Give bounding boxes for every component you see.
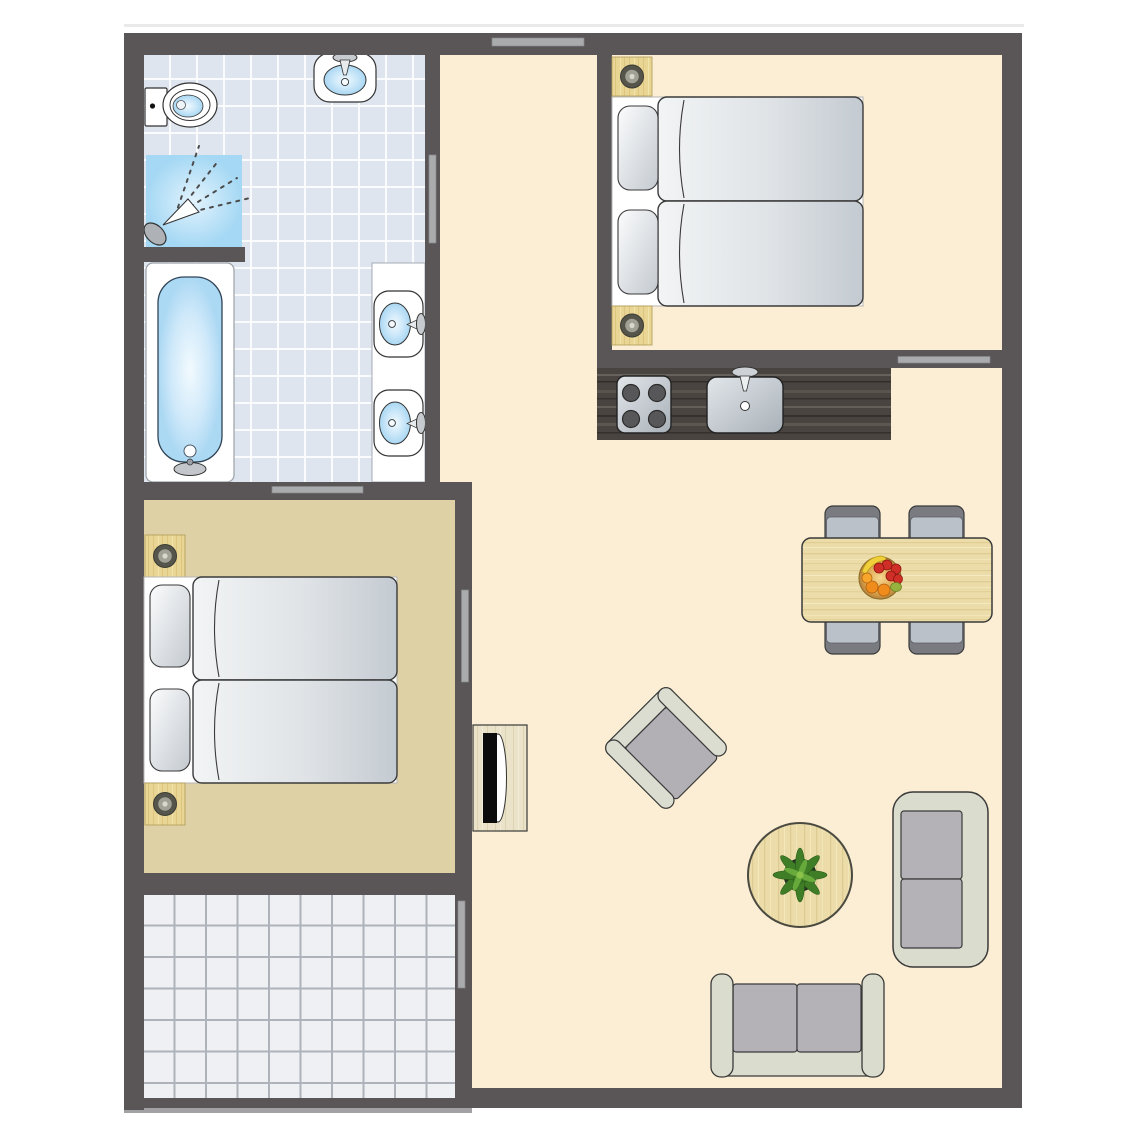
door-marker-bath-bedroom2: [272, 487, 363, 494]
stove-burner: [623, 385, 640, 402]
tv-panel: [483, 733, 497, 823]
door-marker-bedroom2: [462, 590, 469, 682]
wall-sink-drain: [341, 78, 348, 85]
plant-center: [797, 872, 804, 879]
sofa-bottom-armrest: [711, 974, 733, 1077]
fruit-orange: [862, 573, 872, 583]
bedroom1-duvet-1: [658, 97, 863, 201]
floorplan-root: [124, 24, 1024, 1113]
bedroom1-lamp-center: [629, 74, 634, 79]
wall-outer-right: [1002, 33, 1022, 1108]
bedroom1-duvet-2: [658, 201, 863, 306]
bathtub-faucet-knob: [187, 459, 193, 465]
bedroom1-pillow: [618, 106, 658, 190]
wall-shower-stub: [144, 247, 245, 262]
toilet-flush-button: [150, 103, 155, 108]
door-marker-bedroom1: [898, 357, 990, 364]
fruit-cherry: [874, 563, 884, 573]
plant: [773, 848, 827, 902]
bedroom2-duvet-1: [193, 577, 397, 680]
floorplan-canvas: [0, 0, 1145, 1145]
stove-burner: [649, 385, 666, 402]
floorplan: [0, 0, 1145, 1145]
sofa-bottom-cushion: [797, 984, 861, 1052]
fruit-cherry: [894, 575, 903, 584]
bedroom1-lamp-center: [629, 323, 634, 328]
wall-mid-vertical: [455, 482, 472, 1098]
door-marker-terrace: [458, 901, 465, 988]
vanity-sink-2-drain: [389, 420, 396, 427]
kitchen-faucet-base: [732, 367, 758, 377]
wall-outer-bottom: [455, 1088, 1022, 1108]
fruit-orange: [878, 584, 890, 596]
wall-bedroom2-bottom: [124, 873, 472, 895]
sofa-bottom-cushion: [733, 984, 797, 1052]
door-marker-bathroom: [429, 155, 436, 243]
bedroom1-pillow: [618, 210, 658, 294]
sofa-right-cushion: [901, 811, 962, 879]
bedroom2-pillow: [150, 689, 190, 771]
bedroom2-lamp-center: [162, 801, 167, 806]
bathtub-inner: [158, 277, 222, 462]
stove-burner: [623, 411, 640, 428]
wall-bedroom1-left: [597, 55, 612, 352]
wall-bathroom-right: [425, 55, 440, 482]
wall-outer-left: [124, 33, 144, 1110]
sofa-right-cushion: [901, 879, 962, 948]
sofa-bottom-back: [722, 1050, 873, 1076]
window-marker-top: [492, 38, 584, 46]
vanity-sink-1-faucet: [417, 314, 426, 335]
terrace-wall-shadow: [124, 1108, 472, 1113]
wall-terrace-bottom: [124, 1098, 472, 1108]
stove-burner: [649, 411, 666, 428]
vanity-sink-1-drain: [389, 321, 396, 328]
toilet-drain: [177, 101, 186, 110]
bedroom2-lamp-center: [162, 553, 167, 558]
bedroom2-duvet-2: [193, 680, 397, 783]
bathtub-drain: [184, 445, 196, 457]
floor-terrace-tiles: [144, 895, 455, 1098]
sofa-bottom-armrest: [862, 974, 884, 1077]
vanity-sink-2-faucet: [417, 413, 426, 434]
bedroom2-pillow: [150, 585, 190, 667]
fruit-pear: [891, 583, 902, 592]
kitchen-sink-drain: [741, 402, 750, 411]
plan-top-shadow: [124, 24, 1024, 27]
